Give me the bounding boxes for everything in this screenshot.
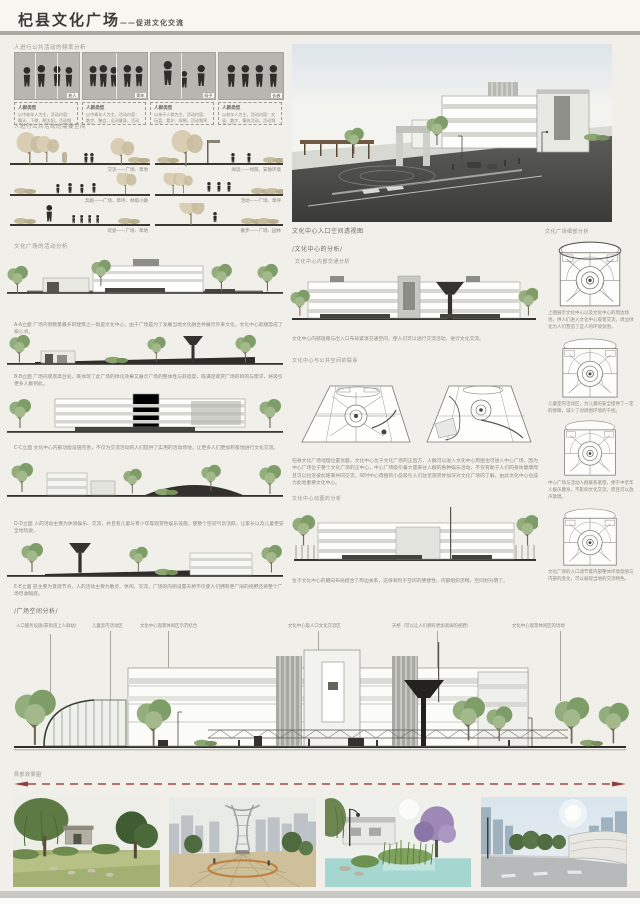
crowd-panel: 青年 人群类型 以中青年人为主，活动内容：散步、聚会、运动健身，活动频率一般。	[82, 52, 146, 125]
plan-diagram	[552, 419, 628, 477]
render-plaza-tower	[169, 797, 316, 887]
caption-text: 以老年人为主，活动内容：交谈、散步、集体活动，活动频率较高。	[222, 112, 278, 125]
crowd-photo: 青年	[82, 52, 148, 100]
callout-label: 文化中心吸人口文化交流区	[288, 623, 341, 629]
panel-caption-box: 人群类型 以老年人为主，活动内容：交谈、散步、集体活动，活动频率较高。	[218, 102, 282, 125]
elevation-drawing-aa	[5, 252, 285, 298]
sketch-drawing	[10, 130, 150, 168]
panel-caption-box: 人群类型 以亲子人群为主，活动内容：玩耍、看护、休憩，活动频率较高。	[150, 102, 214, 125]
diagram-caption: 中心广场与活动人群联系紧密，便于中老年人娱乐健身，不影响文化交流，而且可以放声歌…	[548, 481, 634, 501]
presentation-board: 杞县文化广场——促进文化交流 人进行公共活动的频率分析 老人 人群类型 以中老年…	[0, 0, 640, 904]
connection-label: 文化中心与公共空间的联系	[292, 357, 358, 364]
caption-title: 人群类型	[222, 105, 278, 111]
elevation-drawing-dd	[5, 457, 285, 501]
bottom-edge-bar	[0, 891, 640, 898]
connection-paragraph: 杞县文化广场地理位置优越，文化中心位于文化广场的正后方，人群可以进入文化中心周围…	[292, 458, 538, 488]
elevation-caption: C-C立面 文化中心内部功能设施完善，不仅为交流活动的人们提供了实用的活动场地，…	[14, 445, 286, 452]
diagram-caption: 上图展示文化中心以及文化中心的周边场地，供人们进入文化中心观景交流，周边绿化为人…	[548, 311, 634, 331]
header-divider-bar	[0, 31, 640, 35]
elevation-caption: B-B立面 广场内观景高台处，既体现了此广场的绿化效果又展示广场的整体性与舒适度…	[14, 374, 286, 389]
elevation-caption: D-D立面 人的活动主要为休闲娱乐、交流，并且有儿童与青少年等观赏性娱乐设施，使…	[14, 521, 286, 536]
callout-label: 入口服务设施(靠街道上人群站)	[16, 623, 88, 629]
plan-diagram	[552, 240, 628, 308]
elevation-caption: E-E立面 前主要为景观节点，人的活动主要为散步、休闲、交流，广场的内侧设置天桥…	[14, 584, 286, 599]
perspective-caption: 文化中心入口空间透视图	[292, 226, 364, 235]
crowd-photo: 老人	[14, 52, 80, 100]
page-title: 杞县文化广场——促进文化交流	[18, 9, 184, 30]
crowd-panel: 母子 人群类型 以亲子人群为主，活动内容：玩耍、看护、休憩，活动频率较高。	[150, 52, 214, 125]
layout-elevation-drawing	[292, 505, 538, 571]
detail-column-label: 文化广场细部分析	[545, 228, 589, 235]
layout-caption: 位于文化中心的朝向布局结合了周边关系，这样有利于空间的便捷性，内部组织流畅，空间…	[292, 578, 536, 585]
render-street-view	[481, 797, 627, 887]
crowd-photo: 长者	[218, 52, 284, 100]
renders-section-label: 局部效果图	[14, 771, 42, 778]
center-column-header: /文化中心的分析/	[292, 244, 343, 253]
plan-diagram	[552, 507, 628, 567]
callout-label: 天桥（可以让人们拥有更加宽阔的视野）	[392, 623, 471, 629]
space-sketch: 活动——广场、草坪	[155, 173, 283, 203]
sketch-drawing	[10, 203, 150, 229]
sketch-drawing	[10, 173, 150, 199]
photo-tag: 老人	[67, 93, 78, 98]
activity-column-label: 文化广场的活动分析	[14, 242, 68, 250]
layout-analysis-label: 文化中心动图的分析	[292, 495, 342, 502]
elevation-drawing-bb	[5, 333, 285, 369]
crowd-panel: 长者 人群类型 以老年人为主，活动内容：交谈、散步、集体活动，活动频率较高。	[218, 52, 282, 125]
space-sketch: 玩耍——广场、草地	[10, 203, 150, 233]
title-text: 杞县文化广场	[18, 11, 120, 29]
crowd-panel: 老人 人群类型 以中老年人为主，活动内容：聊天、下棋、晒太阳，活动频率较高。	[14, 52, 78, 125]
plaza-section-header: /广场空间分析/	[14, 606, 58, 615]
panel-caption-box: 人群类型 以中青年人为主，活动内容：散步、聚会、运动健身，活动频率一般。	[82, 102, 146, 125]
main-elevation-drawing	[8, 642, 632, 768]
traffic-caption: 文化中心内部道路与出入口布局紧凑交通空间，使人们可以进行交流活动，进行文化交流。	[292, 336, 536, 343]
space-sketch: 奔跑——广场、草坪、林荫小路	[10, 173, 150, 203]
space-sketch: 交流——广场、草地	[10, 130, 150, 172]
space-sketch: 散步——广场、园林	[155, 203, 283, 233]
elevation-drawing-ee	[5, 535, 285, 581]
callout-label: 儿童室内活动区	[92, 623, 123, 629]
caption-text: 以亲子人群为主，活动内容：玩耍、看护、休憩，活动频率较高。	[154, 112, 210, 125]
diagram-caption: 儿童室内活动区，为儿童的安全提供了一定的保障，减少了对周围环境的干扰。	[548, 402, 634, 416]
sketch-drawing	[155, 203, 283, 229]
red-dashed-divider	[14, 780, 626, 788]
sketch-caption: 玩耍——广场、草地	[108, 228, 149, 234]
traffic-analysis-label: 文化中心内部交通分析	[295, 258, 350, 265]
plan-diagram	[552, 337, 628, 399]
caption-title: 人群类型	[86, 105, 142, 111]
sketch-drawing	[155, 173, 283, 199]
sketch-caption: 散步——广场、园林	[241, 228, 282, 234]
site-plan-perspectives	[292, 372, 537, 454]
photo-tag: 青年	[135, 93, 146, 98]
space-section-label: 人进行公共活动的需要空间	[14, 122, 86, 130]
caption-title: 人群类型	[18, 105, 74, 111]
space-sketch: 阅读——绿荫、安静环境	[155, 130, 283, 172]
caption-title: 人群类型	[154, 105, 210, 111]
traffic-elevation-drawing	[290, 268, 538, 330]
callout-label: 文化中心观景休闲区的场地	[512, 623, 565, 629]
callout-label: 文化中心观景休闲区示范结合	[140, 623, 197, 629]
diagram-caption: 文化广场的入口调节着内部整体环境氛围与内部的变化，可以展现当地的交流特色。	[548, 570, 634, 584]
crowd-photo: 母子	[150, 52, 216, 100]
sketch-drawing	[155, 130, 283, 168]
bottom-white-strip	[0, 898, 640, 904]
render-pond-view	[325, 797, 471, 887]
photo-tag: 长者	[271, 93, 282, 98]
entrance-perspective-rendering	[292, 44, 612, 222]
elevation-drawing-cc	[5, 389, 285, 437]
title-subtitle: ——促进文化交流	[120, 19, 184, 27]
photo-tag: 母子	[203, 93, 214, 98]
caption-text: 以中青年人为主，活动内容：散步、聚会、运动健身，活动频率一般。	[86, 112, 142, 125]
render-park-view	[13, 797, 160, 887]
frequency-section-label: 人进行公共活动的频率分析	[14, 43, 86, 51]
